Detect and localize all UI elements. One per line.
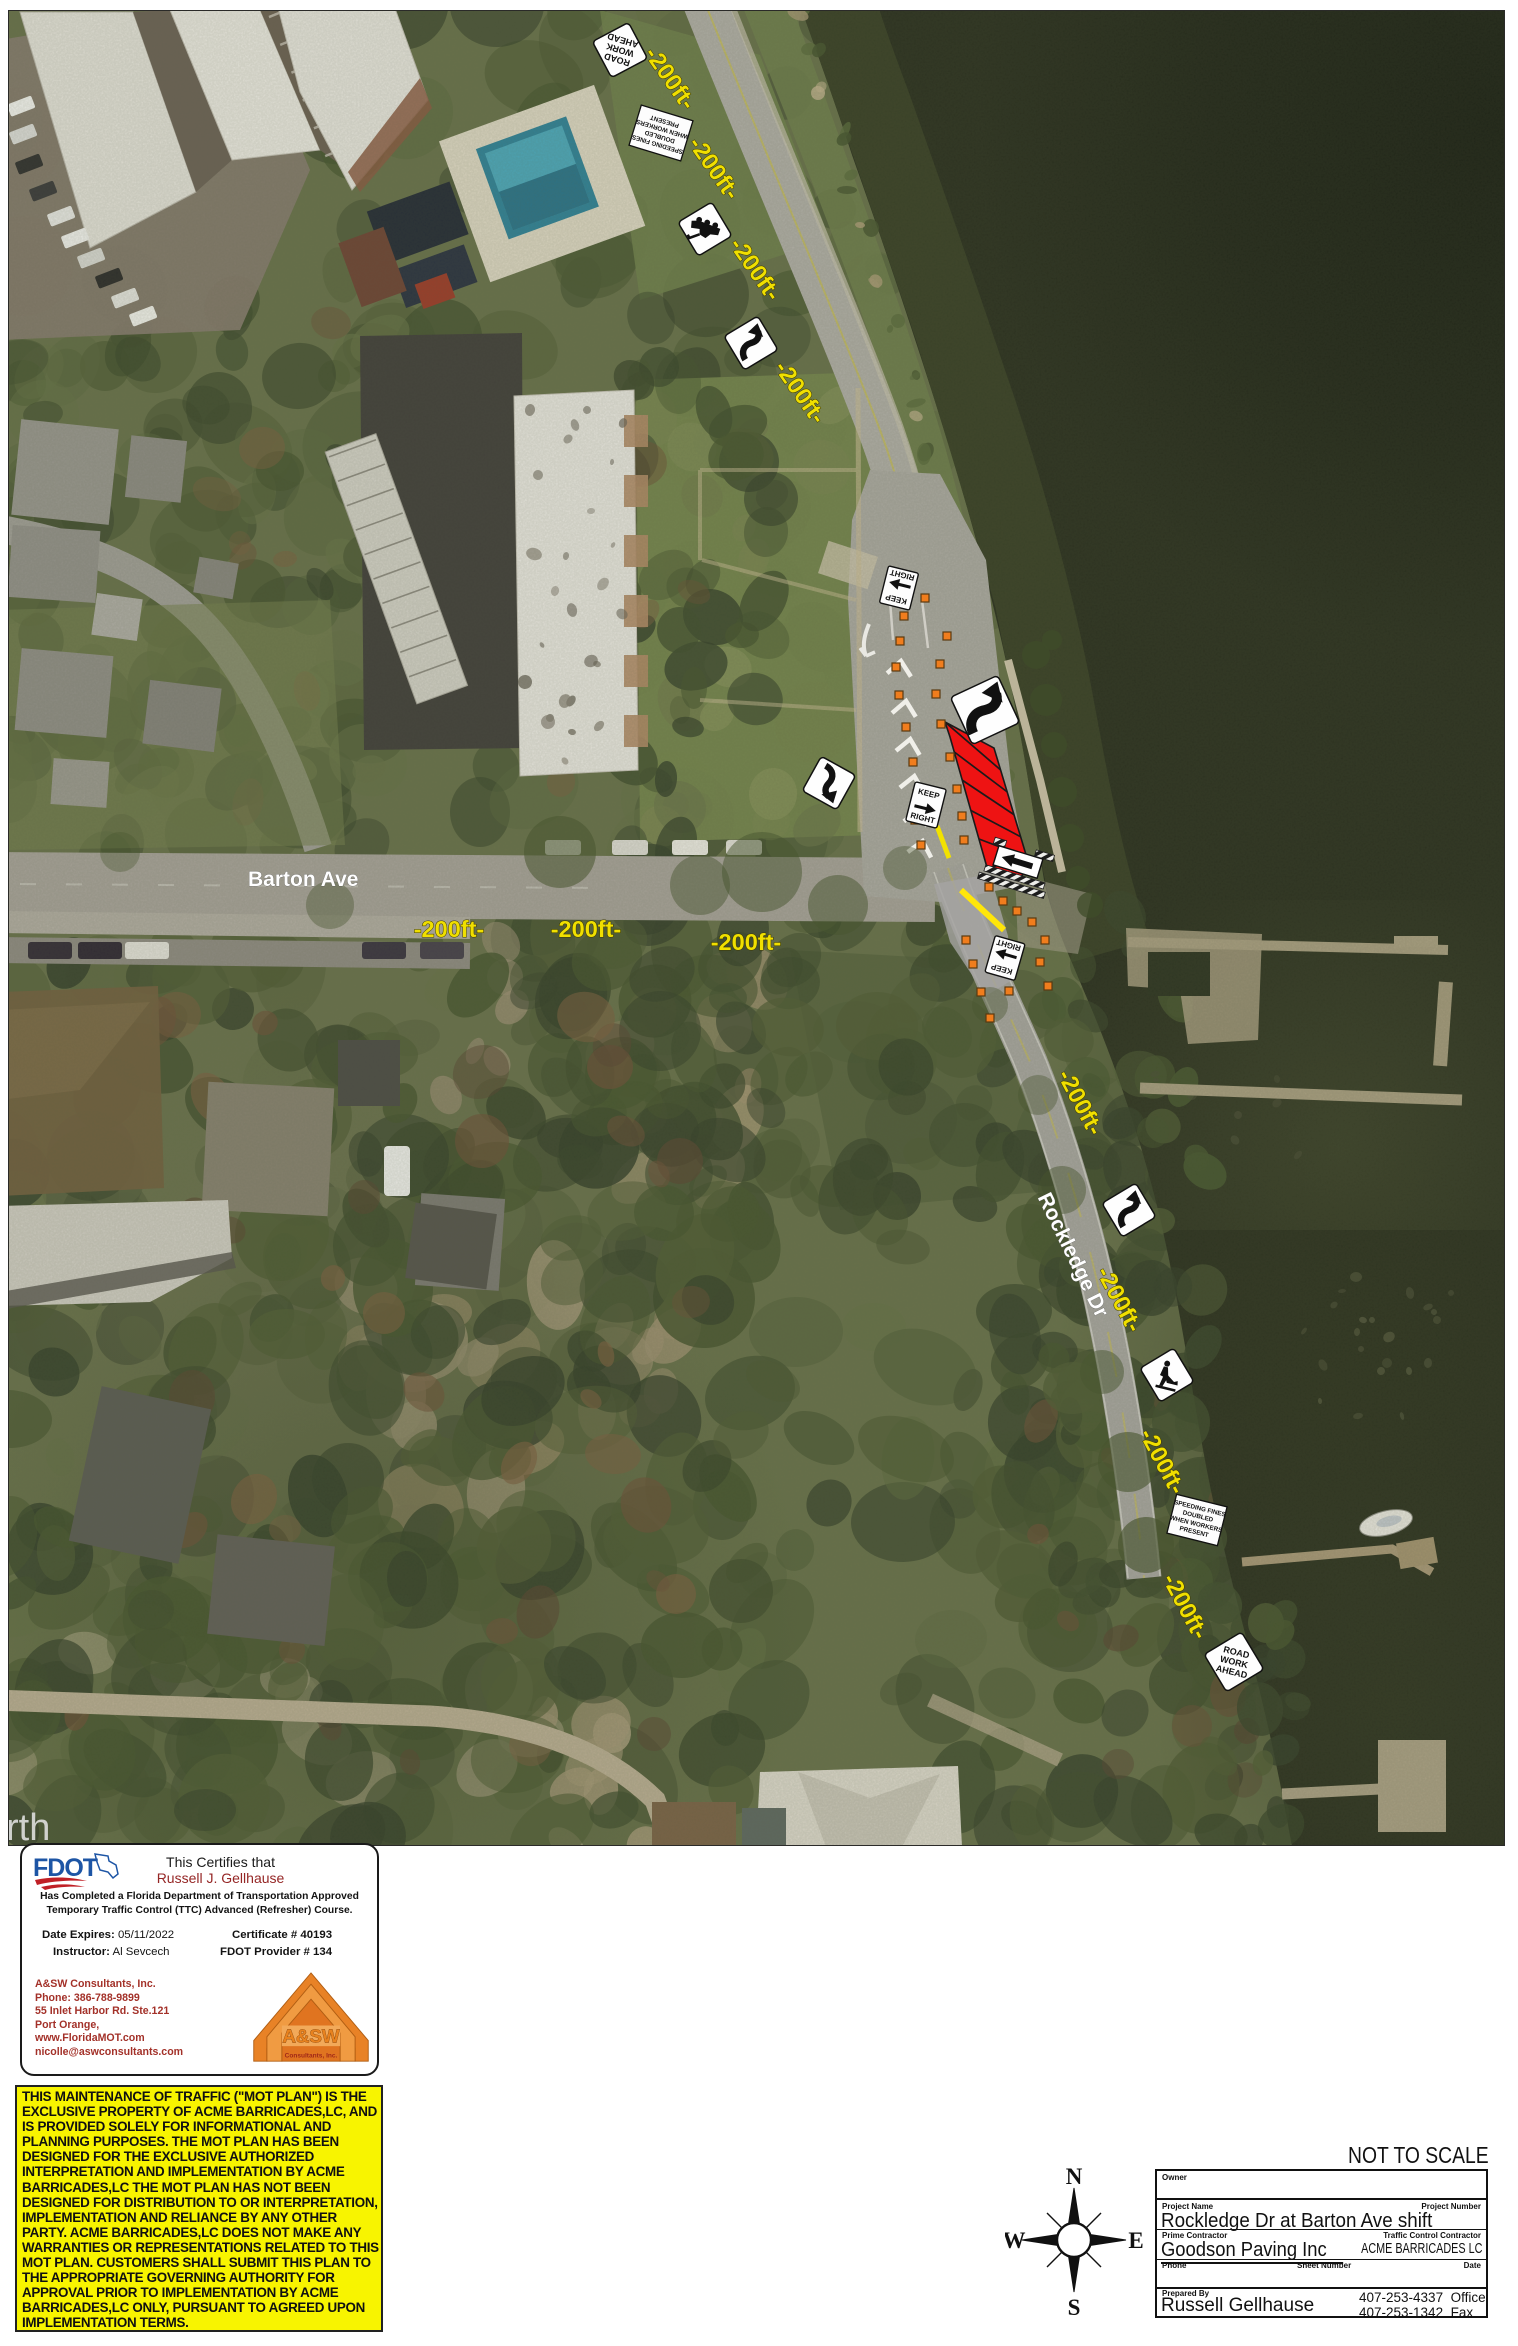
- svg-text:rth: rth: [8, 1807, 50, 1846]
- svg-text:-200ft-: -200ft-: [551, 916, 622, 942]
- svg-text:N: N: [1066, 2168, 1083, 2189]
- svg-text:-200ft-: -200ft-: [711, 929, 782, 955]
- svg-text:W: W: [1005, 2228, 1026, 2253]
- svg-text:Consultants, Inc.: Consultants, Inc.: [285, 2052, 338, 2059]
- svg-text:E: E: [1128, 2228, 1143, 2253]
- svg-text:S: S: [1068, 2295, 1081, 2318]
- svg-text:Barton Ave: Barton Ave: [248, 868, 358, 891]
- svg-text:-200ft-: -200ft-: [414, 916, 485, 942]
- svg-text:A&SW: A&SW: [282, 2025, 340, 2046]
